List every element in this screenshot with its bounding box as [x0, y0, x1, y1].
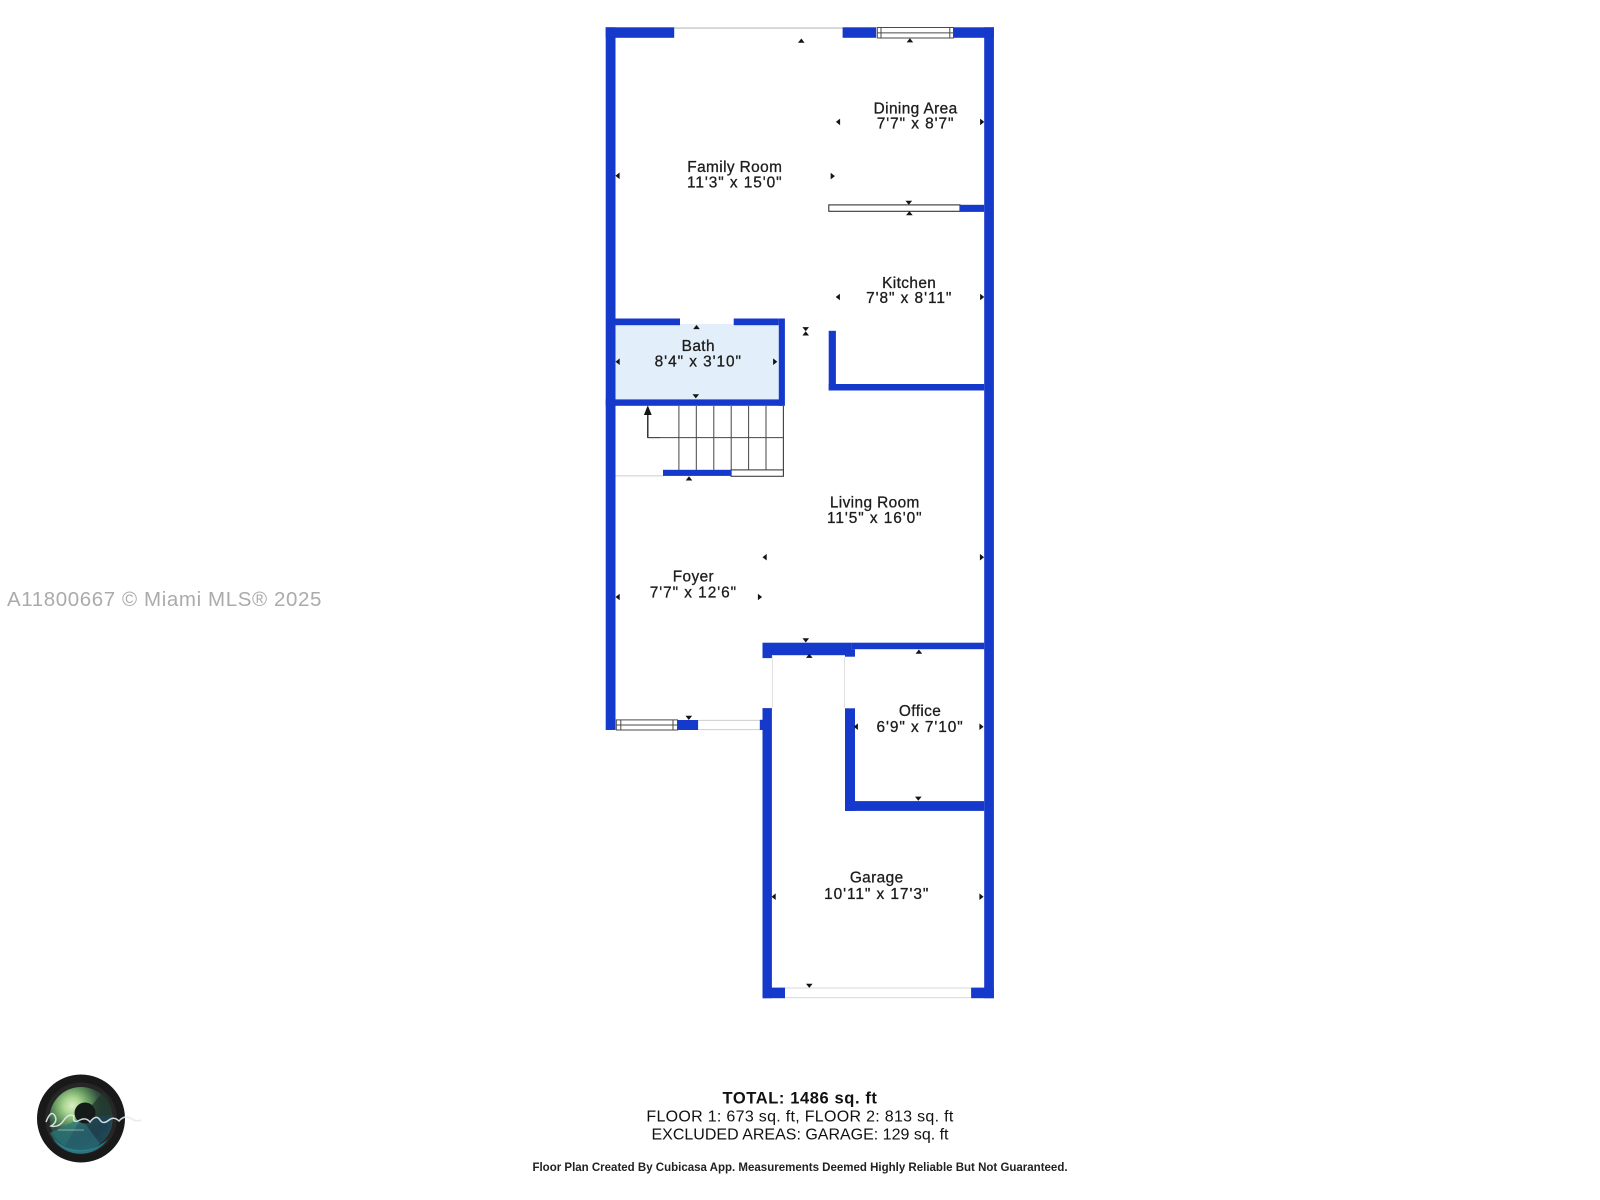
- svg-text:11'3" x 15'0": 11'3" x 15'0": [687, 174, 783, 191]
- svg-text:Garage: Garage: [850, 870, 904, 887]
- svg-text:TOTAL: 1486 sq. ft: TOTAL: 1486 sq. ft: [722, 1090, 877, 1108]
- svg-text:Floor Plan Created By Cubicasa: Floor Plan Created By Cubicasa App. Meas…: [532, 1162, 1067, 1174]
- svg-text:A11800667 © Miami MLS® 2025: A11800667 © Miami MLS® 2025: [7, 588, 322, 611]
- svg-text:EXCLUDED AREAS: GARAGE: 129 sq: EXCLUDED AREAS: GARAGE: 129 sq. ft: [652, 1127, 950, 1144]
- svg-text:7'8" x 8'11": 7'8" x 8'11": [866, 290, 952, 307]
- svg-text:Bath: Bath: [682, 338, 715, 355]
- svg-text:10'11" x 17'3": 10'11" x 17'3": [824, 886, 929, 903]
- svg-text:Foyer: Foyer: [673, 569, 714, 586]
- svg-text:11'5" x 16'0": 11'5" x 16'0": [827, 510, 923, 527]
- svg-text:6'9" x 7'10": 6'9" x 7'10": [876, 719, 963, 736]
- svg-text:7'7" x 8'7": 7'7" x 8'7": [877, 115, 955, 132]
- svg-text:FLOOR 1: 673 sq. ft, FLOOR 2:: FLOOR 1: 673 sq. ft, FLOOR 2: 813 sq. ft: [646, 1109, 953, 1126]
- svg-text:Office: Office: [899, 703, 941, 720]
- svg-text:8'4" x 3'10": 8'4" x 3'10": [655, 354, 742, 371]
- svg-text:Living Room: Living Room: [830, 495, 920, 512]
- svg-text:7'7" x 12'6": 7'7" x 12'6": [650, 585, 737, 602]
